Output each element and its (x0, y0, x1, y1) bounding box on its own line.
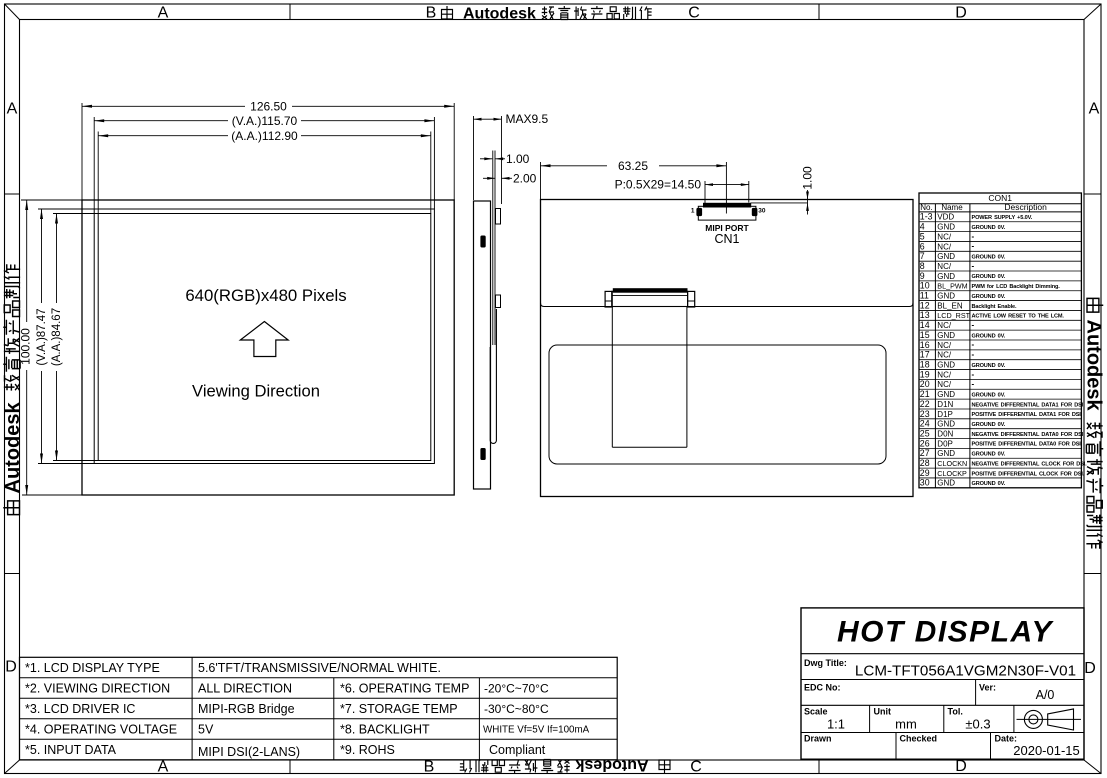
svg-text:2020-01-15: 2020-01-15 (1013, 743, 1080, 758)
svg-text:POWER SUPPLY +5.0V.: POWER SUPPLY +5.0V. (972, 215, 1033, 221)
svg-text:D: D (1084, 660, 1096, 677)
svg-text:CN1: CN1 (714, 232, 739, 246)
svg-text:Viewing Direction: Viewing Direction (192, 382, 320, 401)
svg-text:LCD_RST: LCD_RST (937, 311, 970, 320)
svg-text:±0.3: ±0.3 (965, 717, 990, 732)
svg-text:Name: Name (941, 203, 963, 212)
svg-text:-: - (972, 370, 975, 379)
svg-text:30: 30 (758, 208, 766, 215)
svg-text:No.: No. (920, 203, 932, 212)
svg-text:NEGATIVE DIFFERENTIAL DATA1 FO: NEGATIVE DIFFERENTIAL DATA1 FOR DSI. (972, 402, 1086, 408)
svg-text:B: B (424, 759, 435, 776)
svg-text:GND: GND (937, 361, 955, 370)
svg-text:Backlight Enable.: Backlight Enable. (972, 304, 1017, 310)
svg-text:5.6'TFT/TRANSMISSIVE/NORMAL W: 5.6'TFT/TRANSMISSIVE/NORMAL WHITE. (198, 661, 441, 675)
svg-text:NC/: NC/ (937, 232, 952, 241)
svg-text:6: 6 (920, 241, 925, 251)
svg-text:-: - (972, 350, 975, 359)
svg-text:GROUND 0V.: GROUND 0V. (972, 452, 1006, 458)
svg-text:28: 28 (920, 458, 930, 468)
svg-text:D0P: D0P (937, 439, 953, 448)
svg-text:7: 7 (920, 251, 925, 261)
svg-text:Ver:: Ver: (979, 683, 996, 693)
svg-text:Unit: Unit (874, 706, 892, 716)
svg-text:*8. BACKLIGHT: *8. BACKLIGHT (340, 722, 430, 736)
svg-text:-: - (972, 320, 975, 329)
svg-text:15: 15 (920, 330, 930, 340)
svg-text:C: C (690, 759, 702, 776)
svg-text:(V.A.)87.47: (V.A.)87.47 (36, 308, 48, 365)
svg-text:GND: GND (937, 479, 955, 488)
svg-text:(V.A.)115.70: (V.A.)115.70 (232, 114, 298, 128)
svg-text:*2. VIEWING DIRECTION: *2. VIEWING DIRECTION (25, 681, 170, 695)
svg-text:29: 29 (920, 468, 930, 478)
svg-text:A: A (7, 101, 18, 118)
svg-text:D: D (955, 758, 967, 775)
svg-text:A: A (158, 5, 169, 22)
svg-text:8: 8 (920, 261, 925, 271)
svg-text:Tol.: Tol. (948, 706, 963, 716)
svg-text:17: 17 (920, 350, 930, 360)
svg-text:(A.A.)84.67: (A.A.)84.67 (51, 308, 63, 366)
svg-text:-: - (972, 232, 975, 241)
svg-text:5V: 5V (198, 722, 214, 736)
svg-text:26: 26 (920, 438, 930, 448)
svg-text:27: 27 (920, 448, 930, 458)
svg-text:GROUND 0V.: GROUND 0V. (972, 274, 1006, 280)
svg-text:16: 16 (920, 340, 930, 350)
svg-text:1: 1 (691, 208, 695, 215)
svg-text:GND: GND (937, 252, 955, 261)
svg-text:BL_PWM: BL_PWM (937, 282, 967, 291)
svg-text:*5. INPUT DATA: *5. INPUT DATA (25, 743, 117, 757)
svg-text:MAX9.5: MAX9.5 (506, 112, 549, 126)
svg-text:126.50: 126.50 (250, 99, 287, 113)
svg-text:Scale: Scale (804, 706, 828, 716)
svg-text:63.25: 63.25 (618, 159, 648, 173)
svg-text:EDC No:: EDC No: (804, 683, 841, 693)
svg-text:Checked: Checked (900, 734, 938, 744)
svg-text:GROUND 0V.: GROUND 0V. (972, 255, 1006, 261)
svg-text:GND: GND (937, 449, 955, 458)
svg-text:WHITE Vf=5V If=100mA: WHITE Vf=5V If=100mA (483, 725, 590, 736)
svg-text:A: A (1089, 101, 1100, 118)
svg-text:4: 4 (920, 222, 925, 232)
svg-text:A/0: A/0 (1036, 688, 1055, 702)
svg-text:GND: GND (937, 272, 955, 281)
svg-text:GROUND 0V.: GROUND 0V. (972, 422, 1006, 428)
svg-text:A: A (158, 759, 169, 776)
svg-text:GROUND 0V.: GROUND 0V. (972, 333, 1006, 339)
svg-text:D0N: D0N (937, 429, 953, 438)
svg-text:NC/: NC/ (937, 370, 952, 379)
svg-text:1.00: 1.00 (801, 166, 815, 190)
svg-text:PWM for LCD Backlight Dimming.: PWM for LCD Backlight Dimming. (972, 284, 1061, 290)
svg-text:12: 12 (920, 300, 930, 310)
svg-text:NEGATIVE DIFFERENTIAL CLOCK FO: NEGATIVE DIFFERENTIAL CLOCK FOR DSI. (972, 461, 1088, 467)
svg-text:-: - (972, 261, 975, 270)
svg-text:CLOCKN: CLOCKN (937, 459, 967, 468)
svg-text:NC/: NC/ (937, 242, 952, 251)
svg-text:*6. OPERATING TEMP: *6. OPERATING TEMP (340, 681, 469, 695)
svg-text:23: 23 (920, 409, 930, 419)
svg-text:GND: GND (937, 420, 955, 429)
svg-text:-: - (972, 340, 975, 349)
svg-text:NC/: NC/ (937, 380, 952, 389)
svg-text:GND: GND (937, 292, 955, 301)
svg-text:-20°C~70°C: -20°C~70°C (484, 681, 549, 695)
svg-text:-: - (972, 242, 975, 251)
svg-text:18: 18 (920, 360, 930, 370)
svg-text:1:1: 1:1 (827, 717, 845, 732)
svg-text:21: 21 (920, 389, 930, 399)
svg-text:CLOCKP: CLOCKP (937, 469, 967, 478)
svg-text:ACTIVE LOW RESET TO THE LCM.: ACTIVE LOW RESET TO THE LCM. (972, 314, 1065, 320)
svg-text:640(RGB)x480 Pixels: 640(RGB)x480 Pixels (185, 286, 346, 305)
svg-text:10: 10 (920, 281, 930, 291)
svg-text:19: 19 (920, 369, 930, 379)
svg-text:POSITIVE DIFFERENTIAL CLOCK FO: POSITIVE DIFFERENTIAL CLOCK FOR DSI. (972, 471, 1085, 477)
svg-text:MIPI-RGB Bridge: MIPI-RGB Bridge (198, 702, 295, 716)
svg-text:POSITIVE DIFFERENTIAL DATA1 FO: POSITIVE DIFFERENTIAL DATA1 FOR DSI. (972, 412, 1083, 418)
svg-text:GROUND 0V.: GROUND 0V. (972, 363, 1006, 369)
svg-text:100.00: 100.00 (19, 328, 33, 365)
svg-text:22: 22 (920, 399, 930, 409)
svg-text:1-3: 1-3 (920, 212, 933, 222)
svg-text:GND: GND (937, 390, 955, 399)
svg-text:*3. LCD DRIVER IC: *3. LCD DRIVER IC (25, 702, 135, 716)
svg-text:NC/: NC/ (937, 351, 952, 360)
svg-text:Drawn: Drawn (804, 734, 832, 744)
svg-text:11: 11 (920, 291, 929, 301)
svg-text:GROUND 0V.: GROUND 0V. (972, 481, 1006, 487)
svg-text:POSITIVE DIFFERENTIAL DATA0 FO: POSITIVE DIFFERENTIAL DATA0 FOR DSI. (972, 442, 1083, 448)
svg-text:GROUND 0V.: GROUND 0V. (972, 392, 1006, 398)
svg-text:-: - (972, 380, 975, 389)
svg-text:GND: GND (937, 223, 955, 232)
svg-text:GROUND 0V.: GROUND 0V. (972, 225, 1006, 231)
svg-text:5: 5 (920, 231, 925, 241)
svg-text:ALL DIRECTION: ALL DIRECTION (198, 681, 292, 695)
svg-text:VDD: VDD (937, 213, 954, 222)
svg-text:NEGATIVE DIFFERENTIAL DATA0 FO: NEGATIVE DIFFERENTIAL DATA0 FOR DSI. (972, 432, 1086, 438)
svg-text:HOT DISPLAY: HOT DISPLAY (837, 616, 1054, 649)
svg-text:*1. LCD DISPLAY TYPE: *1. LCD DISPLAY TYPE (25, 661, 160, 675)
svg-text:MIPI DSI(2-LANS): MIPI DSI(2-LANS) (198, 745, 300, 759)
svg-text:GROUND 0V.: GROUND 0V. (972, 294, 1006, 300)
svg-text:24: 24 (920, 419, 930, 429)
svg-text:NC/: NC/ (937, 341, 952, 350)
svg-text:NC/: NC/ (937, 321, 952, 330)
svg-text:25: 25 (920, 428, 930, 438)
svg-text:D: D (955, 5, 967, 22)
svg-text:14: 14 (920, 320, 930, 330)
svg-text:B: B (426, 5, 437, 22)
svg-text:*9. ROHS: *9. ROHS (340, 743, 395, 757)
svg-text:Date:: Date: (995, 734, 1018, 744)
svg-text:P:0.5X29=14.50: P:0.5X29=14.50 (615, 178, 702, 192)
svg-text:-30°C~80°C: -30°C~80°C (484, 702, 549, 716)
svg-text:D1P: D1P (937, 410, 953, 419)
svg-text:BL_EN: BL_EN (937, 301, 963, 310)
svg-text:1.00: 1.00 (506, 152, 530, 166)
svg-text:*7. STORAGE TEMP: *7. STORAGE TEMP (340, 702, 458, 716)
svg-text:(A.A.)112.90: (A.A.)112.90 (231, 129, 298, 143)
svg-text:Dwg Title:: Dwg Title: (804, 658, 847, 668)
svg-text:NC/: NC/ (937, 262, 952, 271)
svg-text:Description: Description (1004, 202, 1047, 212)
svg-text:D1N: D1N (937, 400, 953, 409)
svg-text:2.00: 2.00 (513, 171, 537, 185)
svg-text:D: D (5, 659, 17, 676)
svg-text:9: 9 (920, 271, 925, 281)
svg-text:GND: GND (937, 331, 955, 340)
svg-text:20: 20 (920, 379, 930, 389)
svg-text:*4. OPERATING VOLTAGE: *4. OPERATING VOLTAGE (25, 722, 177, 736)
svg-text:LCM-TFT056A1VGM2N30F-V01: LCM-TFT056A1VGM2N30F-V01 (855, 663, 1076, 680)
svg-text:Compliant: Compliant (489, 743, 546, 757)
svg-text:C: C (688, 5, 700, 22)
svg-text:13: 13 (920, 310, 930, 320)
svg-text:mm: mm (895, 717, 917, 732)
svg-text:30: 30 (920, 478, 930, 488)
